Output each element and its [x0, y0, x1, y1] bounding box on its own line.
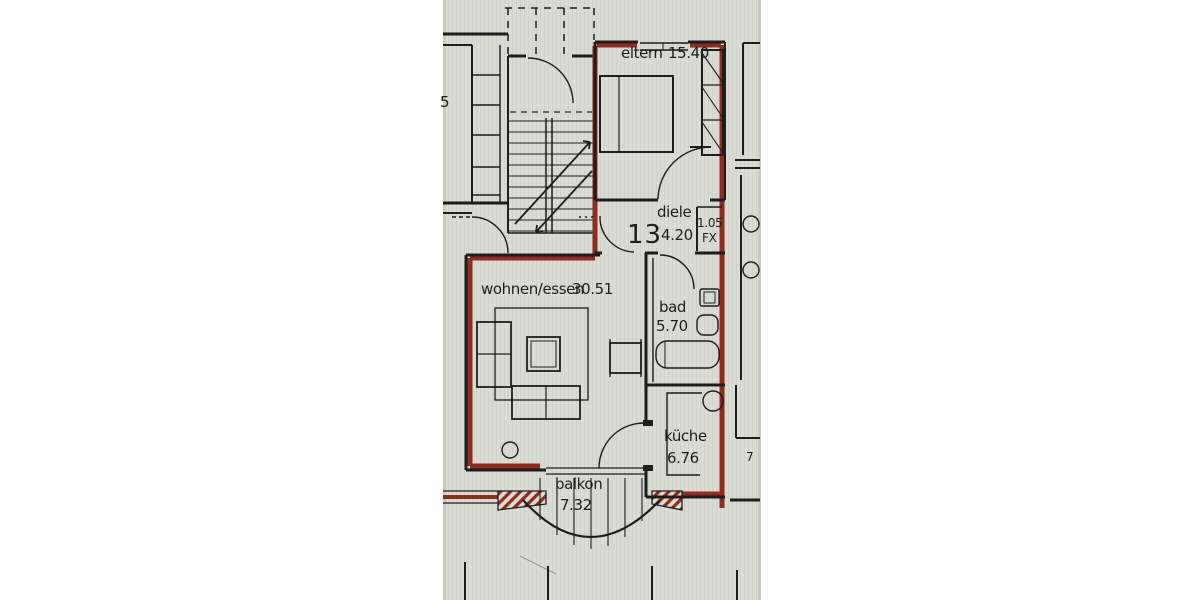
room-area-wohnen: 30.51 — [572, 280, 613, 298]
room-label-balkon: balkon — [555, 475, 602, 493]
photo-strip — [443, 0, 761, 600]
room-area-kueche: 6.76 — [667, 449, 699, 467]
room-label-kueche: küche — [664, 427, 707, 445]
room-label-wohnen: wohnen/essen — [481, 280, 584, 298]
unit-number: 13 — [627, 220, 662, 250]
room-area-eltern: 15.40 — [668, 44, 709, 62]
room-area-bad: 5.70 — [656, 317, 688, 335]
photo-edge-right — [758, 0, 761, 600]
room-area-balkon: 7.32 — [560, 496, 592, 514]
photo-edge-left — [443, 0, 446, 600]
floor-plan-page: 5 — [0, 0, 1200, 600]
left-edge-partial-label: 5 — [440, 93, 449, 111]
room-label-bad: bad — [659, 298, 686, 316]
door-jamb-top — [643, 420, 653, 426]
shaft-code-label: FX — [702, 231, 717, 245]
room-label-diele: diele — [657, 203, 691, 221]
floor-plan-drawing: 5 — [0, 0, 1200, 600]
room-area-diele: 4.20 — [661, 226, 693, 244]
right-edge-partial-label: 7 — [746, 450, 753, 464]
shaft-dimension-label: 1.05 — [697, 216, 723, 230]
room-label-eltern: eltern — [621, 44, 663, 62]
